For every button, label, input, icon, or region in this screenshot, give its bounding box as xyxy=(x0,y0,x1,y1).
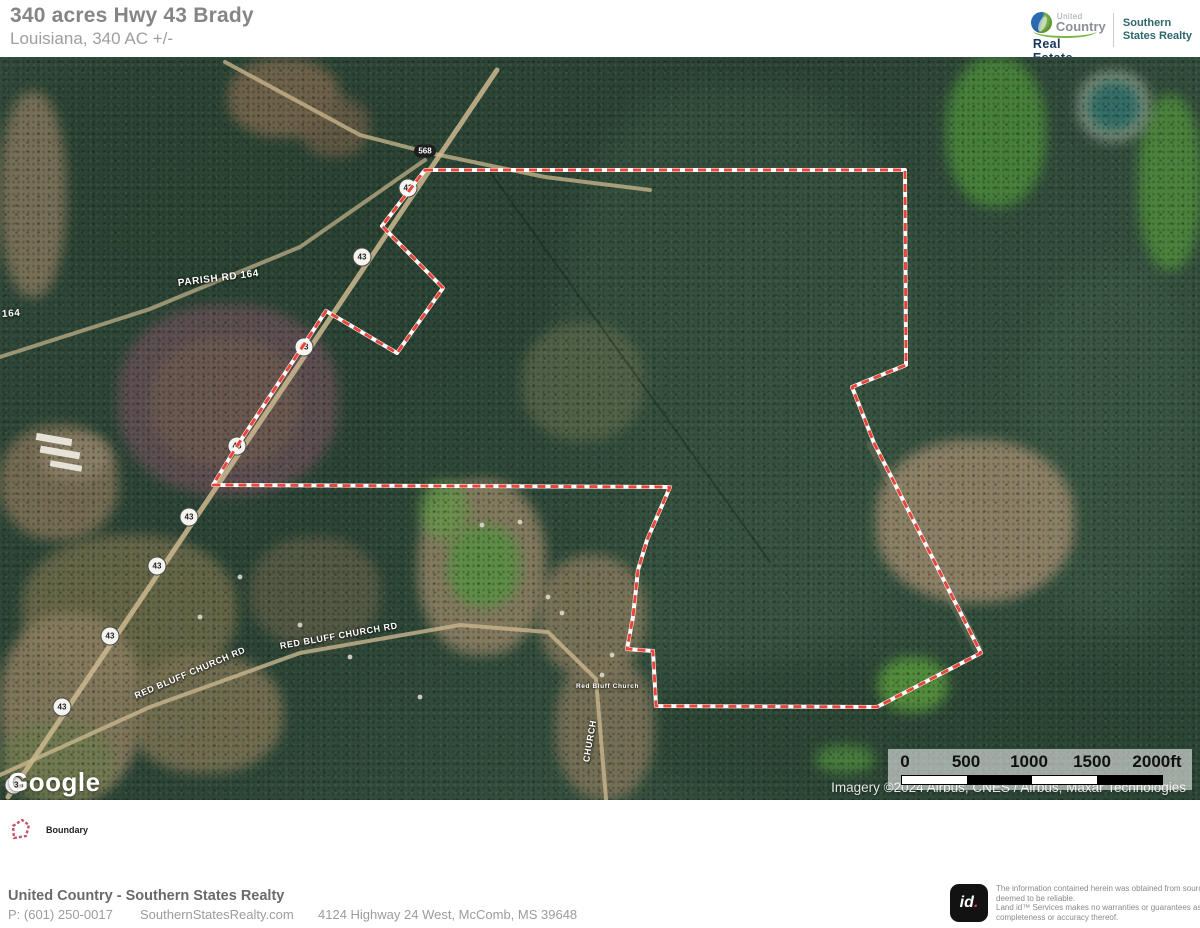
satellite-map[interactable]: 568434343434343434343 PARISH RD 164164RE… xyxy=(0,57,1200,800)
legend: Boundary xyxy=(8,817,88,843)
google-logo: Google xyxy=(8,767,101,798)
brand-block: United Country Real Estate Southern Stat… xyxy=(1031,8,1192,52)
listing-flyer: 340 acres Hwy 43 Brady Louisiana, 340 AC… xyxy=(0,0,1200,928)
road-labels-layer: PARISH RD 164164RED BLUFF CHURCH RDRED B… xyxy=(0,57,1200,800)
road-label: RED BLUFF CHURCH RD xyxy=(279,620,398,651)
header: 340 acres Hwy 43 Brady Louisiana, 340 AC… xyxy=(0,0,1200,57)
scale-tick: 1500 xyxy=(1073,752,1111,772)
disclaimer-line: The information contained herein was obt… xyxy=(996,884,1200,894)
scale-tick: 1000 xyxy=(1010,752,1048,772)
website: SouthernStatesRealty.com xyxy=(140,907,294,922)
land-id-dot: . xyxy=(974,894,978,912)
agency-line2: States Realty xyxy=(1123,30,1192,43)
disclaimer-block: id. The information contained herein was… xyxy=(950,884,1200,922)
phone-number: P: (601) 250-0017 xyxy=(8,907,113,922)
company-name: United Country - Southern States Realty xyxy=(8,888,608,904)
road-label: PARISH RD 164 xyxy=(177,268,259,289)
road-label: 164 xyxy=(2,308,21,320)
disclaimer-line: Land id™ Services makes no warranties or… xyxy=(996,903,1200,913)
road-label: Red Bluff Church xyxy=(576,683,639,690)
footer-contact-block: United Country - Southern States Realty … xyxy=(8,888,608,923)
scale-segment xyxy=(1032,776,1097,784)
disclaimer-line: deemed to be reliable. xyxy=(996,894,1200,904)
logo-swoosh xyxy=(1033,24,1097,38)
scale-segment xyxy=(1097,776,1162,784)
united-country-logo: United Country Real Estate xyxy=(1031,10,1101,50)
land-id-text: id xyxy=(960,894,974,912)
scale-tick: 2000ft xyxy=(1132,752,1181,772)
page-title: 340 acres Hwy 43 Brady xyxy=(10,4,254,28)
scale-tick: 500 xyxy=(952,752,980,772)
road-label: CHURCH xyxy=(581,719,598,763)
scale-bar: 0500100015002000ft xyxy=(888,749,1192,790)
legend-boundary-label: Boundary xyxy=(46,825,88,835)
scale-segment xyxy=(967,776,1032,784)
disclaimer-line: completeness or accuracy thereof. xyxy=(996,913,1200,923)
road-label: RED BLUFF CHURCH RD xyxy=(133,645,247,701)
scale-segment xyxy=(902,776,967,784)
boundary-legend-icon xyxy=(8,817,32,843)
disclaimer-text: The information contained herein was obt… xyxy=(996,884,1200,922)
scale-tick: 0 xyxy=(900,752,909,772)
page-subtitle: Louisiana, 340 AC +/- xyxy=(10,29,173,49)
agency-name: Southern States Realty xyxy=(1123,17,1192,42)
contact-row: P: (601) 250-0017 SouthernStatesRealty.c… xyxy=(8,907,608,923)
address: 4124 Highway 24 West, McComb, MS 39648 xyxy=(318,907,577,922)
agency-line1: Southern xyxy=(1123,17,1171,30)
scale-bar-segments xyxy=(901,775,1163,785)
land-id-logo: id. xyxy=(950,884,988,922)
brand-divider xyxy=(1113,13,1114,47)
